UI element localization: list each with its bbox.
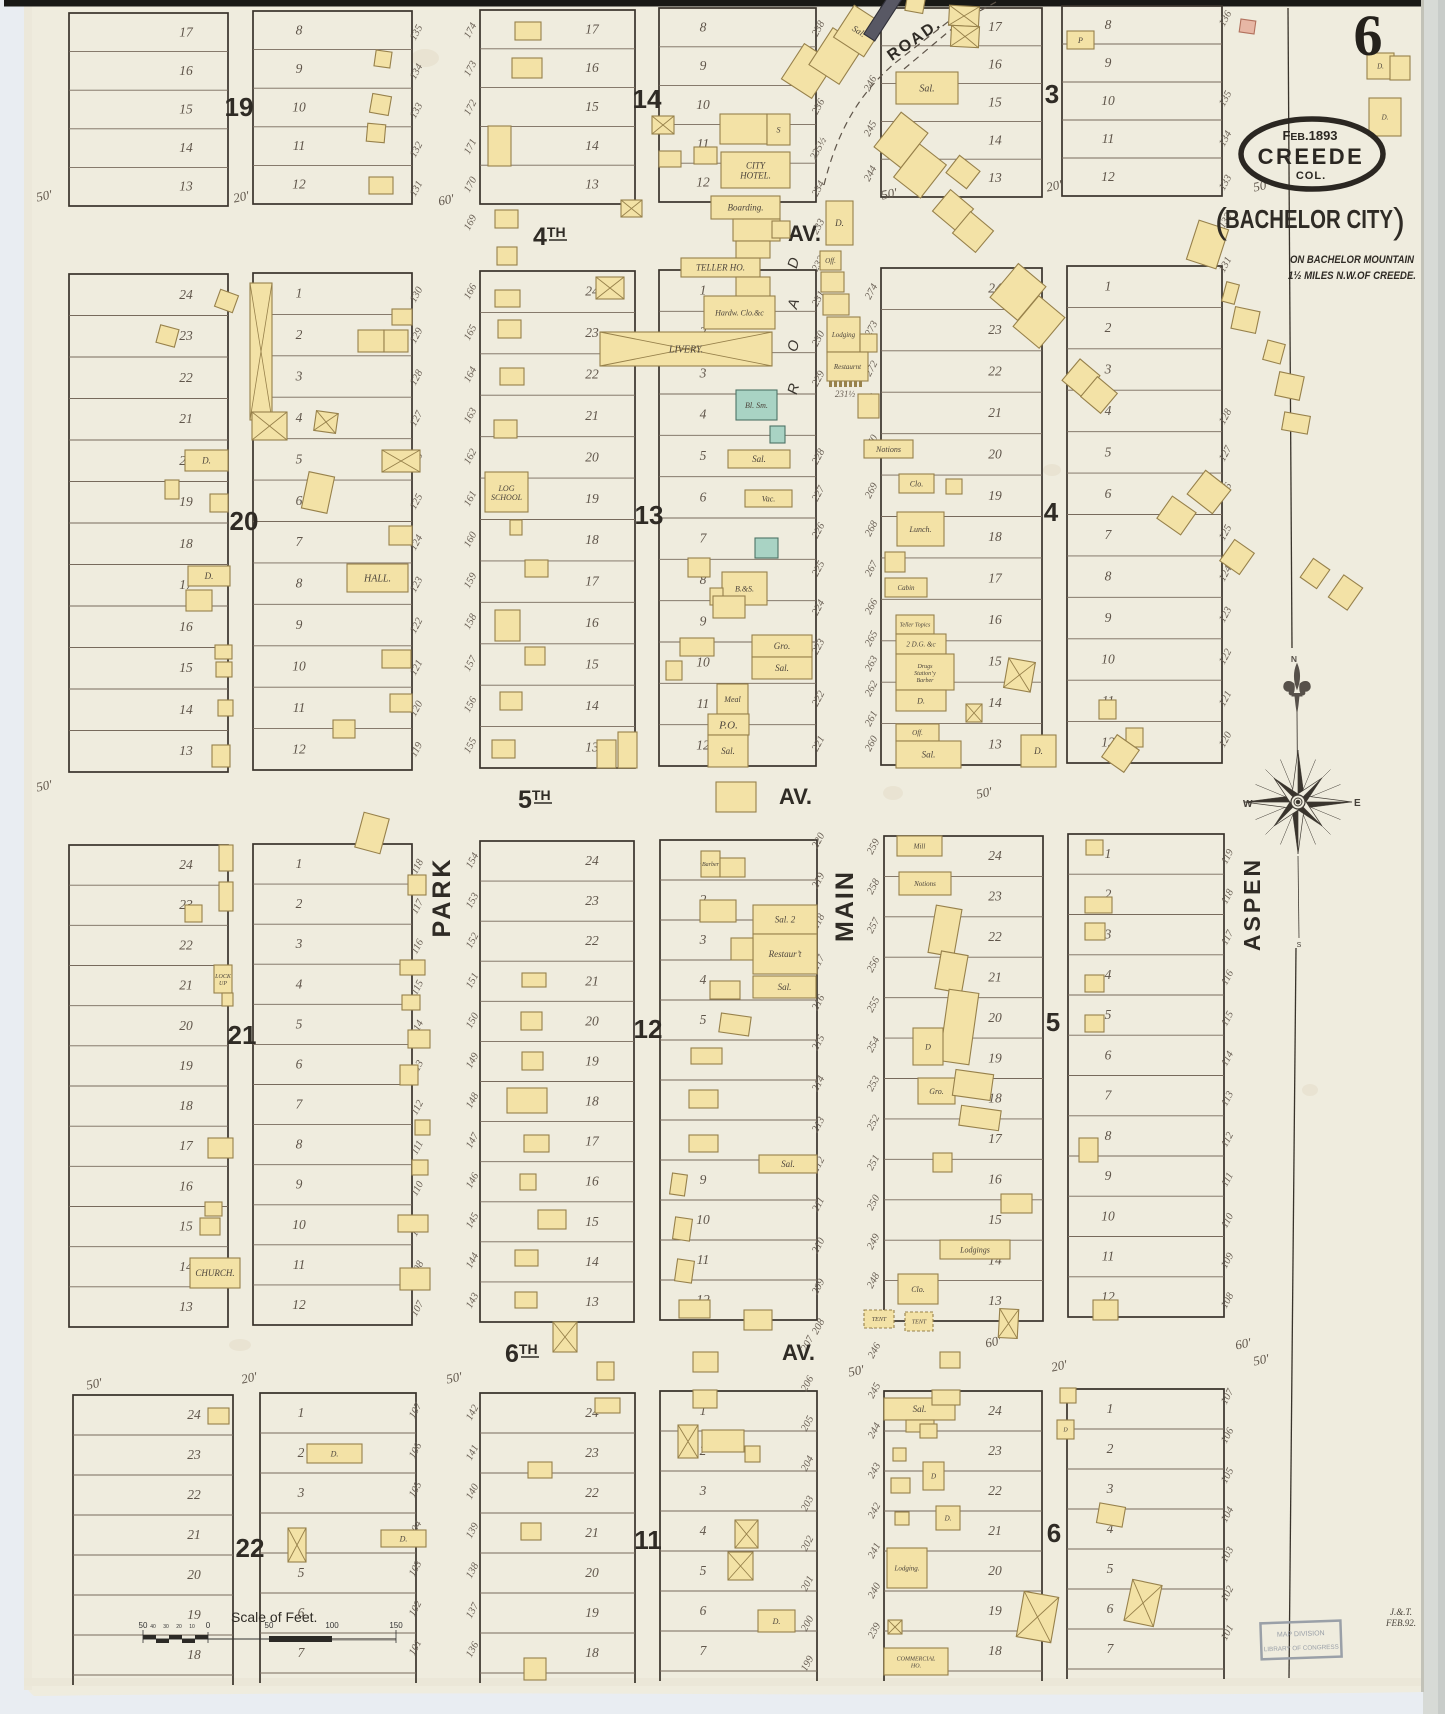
svg-text:1: 1 [298, 1405, 305, 1420]
svg-text:40: 40 [150, 1624, 156, 1630]
svg-text:Restaur’t: Restaur’t [768, 949, 802, 959]
svg-text:CREEDE: CREEDE [1258, 144, 1365, 169]
svg-text:TENT: TENT [872, 1317, 887, 1323]
svg-text:4: 4 [700, 407, 707, 422]
svg-text:LOCK: LOCK [214, 974, 232, 980]
svg-text:10: 10 [189, 1624, 195, 1630]
svg-text:Station’y: Station’y [914, 671, 936, 677]
svg-text:8: 8 [296, 1137, 303, 1152]
svg-text:13: 13 [179, 1299, 193, 1314]
svg-text:23: 23 [179, 328, 193, 343]
svg-text:AV.: AV. [788, 221, 821, 246]
svg-text:14: 14 [179, 140, 193, 155]
svg-text:3: 3 [699, 1483, 707, 1498]
svg-text:0: 0 [206, 1621, 211, 1630]
svg-text:1: 1 [1105, 279, 1112, 294]
svg-text:Sal.: Sal. [913, 1404, 927, 1414]
svg-text:3: 3 [1106, 1481, 1114, 1496]
svg-text:20: 20 [179, 1018, 193, 1033]
svg-text:D.: D. [944, 1515, 952, 1523]
svg-text:22: 22 [988, 1483, 1002, 1498]
svg-text:150: 150 [389, 1621, 403, 1630]
svg-text:8: 8 [1105, 569, 1112, 584]
svg-text:D: D [924, 1042, 931, 1051]
svg-text:PARK: PARK [428, 857, 456, 938]
svg-text:13: 13 [179, 743, 193, 758]
svg-text:Gro.: Gro. [929, 1087, 944, 1096]
svg-text:13: 13 [635, 500, 664, 530]
svg-text:Sal.: Sal. [778, 982, 792, 992]
svg-text:20: 20 [988, 1010, 1002, 1025]
svg-text:12: 12 [292, 177, 306, 192]
svg-text:16: 16 [585, 1174, 599, 1189]
svg-text:19: 19 [179, 494, 193, 509]
svg-text:Cabin: Cabin [897, 584, 915, 592]
svg-text:10: 10 [292, 1217, 306, 1232]
svg-text:14: 14 [179, 702, 193, 717]
svg-text:D.: D. [834, 218, 844, 228]
svg-text:20: 20 [230, 506, 259, 536]
svg-text:16: 16 [585, 615, 599, 630]
svg-text:18: 18 [585, 532, 599, 547]
svg-text:): ) [1393, 200, 1405, 241]
svg-text:8: 8 [296, 576, 303, 591]
svg-text:11: 11 [1102, 1249, 1115, 1264]
svg-text:TELLER HO.: TELLER HO. [696, 263, 745, 273]
svg-text:18: 18 [179, 536, 193, 551]
svg-text:Teller Topics: Teller Topics [900, 623, 931, 629]
svg-text:22: 22 [585, 367, 599, 382]
svg-text:Sal.: Sal. [721, 746, 735, 756]
svg-text:D.: D. [772, 1617, 781, 1626]
svg-text:Mill: Mill [913, 843, 926, 851]
svg-text:D.: D. [1033, 746, 1043, 756]
svg-text:24: 24 [988, 1403, 1002, 1418]
svg-text:S: S [777, 125, 781, 134]
svg-text:Sal.: Sal. [781, 1159, 795, 1169]
svg-text:17: 17 [585, 574, 600, 589]
svg-text:9: 9 [700, 613, 707, 628]
svg-text:N: N [1291, 654, 1297, 664]
svg-text:21: 21 [585, 408, 599, 423]
svg-text:5: 5 [1105, 444, 1112, 459]
svg-text:22: 22 [585, 933, 599, 948]
svg-text:4: 4 [700, 972, 707, 987]
svg-text:AV.: AV. [779, 784, 812, 809]
svg-text:Sal.: Sal. [775, 663, 789, 673]
svg-text:Sal.: Sal. [922, 750, 936, 760]
svg-text:21: 21 [228, 1020, 257, 1050]
svg-text:9: 9 [296, 1177, 303, 1192]
svg-text:2: 2 [296, 896, 303, 911]
svg-text:20: 20 [988, 446, 1002, 461]
svg-text:23: 23 [988, 889, 1002, 904]
svg-text:Lodging: Lodging [831, 331, 856, 339]
svg-text:5: 5 [1046, 1007, 1060, 1037]
svg-text:ASPEN: ASPEN [1239, 857, 1265, 951]
svg-text:10: 10 [696, 1212, 710, 1227]
svg-text:11: 11 [1102, 131, 1115, 146]
svg-text:12: 12 [292, 1297, 306, 1312]
svg-text:3: 3 [699, 932, 707, 947]
svg-text:24: 24 [988, 848, 1002, 863]
svg-text:15: 15 [179, 102, 193, 117]
svg-text:19: 19 [585, 491, 599, 506]
svg-text:21: 21 [187, 1527, 201, 1542]
svg-text:D.: D. [1381, 114, 1389, 122]
svg-text:13: 13 [179, 179, 193, 194]
svg-text:Notions: Notions [913, 880, 936, 888]
svg-text:17: 17 [988, 571, 1003, 586]
svg-text:6: 6 [700, 1603, 707, 1618]
svg-text:9: 9 [296, 617, 303, 632]
svg-text:1½ MILES N.W.OF CREEDE.: 1½ MILES N.W.OF CREEDE. [1288, 270, 1416, 282]
svg-text:Lodgings: Lodgings [959, 1245, 990, 1254]
svg-text:AV.: AV. [782, 1340, 815, 1365]
svg-text:19: 19 [988, 1603, 1002, 1618]
svg-text:30: 30 [163, 1624, 169, 1630]
svg-text:14: 14 [988, 695, 1002, 710]
svg-text:10: 10 [1101, 1208, 1115, 1223]
svg-text:16: 16 [585, 60, 599, 75]
svg-text:D: D [1062, 1428, 1068, 1434]
svg-text:22: 22 [236, 1533, 265, 1563]
svg-text:21: 21 [988, 1523, 1002, 1538]
svg-text:Lodging.: Lodging. [893, 1565, 919, 1573]
svg-text:D.: D. [201, 456, 211, 466]
svg-text:24: 24 [585, 853, 599, 868]
svg-text:3: 3 [1104, 362, 1112, 377]
svg-text:18: 18 [988, 529, 1002, 544]
svg-text:4: 4 [1105, 967, 1112, 982]
svg-text:22: 22 [179, 370, 193, 385]
svg-text:21: 21 [988, 405, 1002, 420]
svg-text:Vac.: Vac. [762, 494, 776, 503]
svg-text:FEB.1893: FEB.1893 [1282, 128, 1337, 143]
svg-text:6: 6 [1105, 486, 1112, 501]
svg-text:3: 3 [295, 936, 303, 951]
svg-text:LOG: LOG [497, 484, 514, 493]
svg-text:COL.: COL. [1296, 170, 1326, 182]
svg-text:10: 10 [1101, 93, 1115, 108]
svg-text:20: 20 [176, 1624, 182, 1630]
svg-text:20: 20 [585, 1013, 599, 1028]
svg-text:8: 8 [1105, 17, 1112, 32]
svg-text:19: 19 [179, 1058, 193, 1073]
svg-text:2: 2 [298, 1445, 305, 1460]
svg-text:1: 1 [1107, 1401, 1114, 1416]
svg-text:18: 18 [179, 1098, 193, 1113]
svg-text:24: 24 [179, 857, 193, 872]
svg-text:21: 21 [585, 973, 599, 988]
svg-text:19: 19 [187, 1607, 201, 1622]
svg-text:Barber: Barber [917, 678, 935, 684]
svg-text:22: 22 [187, 1487, 201, 1502]
svg-text:MAIN: MAIN [831, 870, 859, 942]
svg-text:Drugs: Drugs [916, 664, 933, 670]
svg-text:15: 15 [988, 95, 1002, 110]
svg-text:9: 9 [1105, 610, 1112, 625]
svg-text:8: 8 [296, 22, 303, 37]
svg-text:18: 18 [187, 1647, 201, 1662]
svg-text:17: 17 [988, 1131, 1003, 1146]
svg-text:21: 21 [179, 411, 193, 426]
svg-text:17: 17 [585, 21, 600, 36]
svg-text:SCHOOL: SCHOOL [491, 493, 523, 502]
svg-text:10: 10 [292, 659, 306, 674]
svg-text:CHURCH.: CHURCH. [195, 1268, 234, 1278]
svg-text:10: 10 [1101, 652, 1115, 667]
svg-text:16: 16 [179, 1178, 193, 1193]
svg-text:15: 15 [585, 657, 599, 672]
svg-text:23: 23 [585, 325, 599, 340]
svg-text:P.O.: P.O. [718, 719, 738, 731]
svg-text:19: 19 [988, 488, 1002, 503]
svg-text:18: 18 [988, 1643, 1002, 1658]
svg-text:16: 16 [179, 619, 193, 634]
svg-text:16: 16 [179, 63, 193, 78]
svg-text:1: 1 [296, 286, 303, 301]
svg-text:Hardw. Clo.&c: Hardw. Clo.&c [714, 308, 764, 317]
svg-text:10: 10 [292, 100, 306, 115]
svg-text:6: 6 [1354, 3, 1383, 68]
svg-text:Gro.: Gro. [774, 641, 790, 651]
svg-text:3: 3 [297, 1485, 305, 1500]
svg-text:23: 23 [187, 1447, 201, 1462]
svg-text:Sal.: Sal. [919, 84, 934, 95]
svg-text:CITY: CITY [746, 161, 766, 171]
svg-text:23: 23 [585, 1445, 599, 1460]
svg-text:4: 4 [296, 410, 303, 425]
svg-text:21: 21 [585, 1525, 599, 1540]
svg-text:17: 17 [585, 1134, 600, 1149]
svg-text:14: 14 [585, 1254, 599, 1269]
svg-text:12: 12 [1101, 169, 1115, 184]
svg-text:6: 6 [1105, 1047, 1112, 1062]
svg-text:17: 17 [179, 24, 194, 39]
svg-text:3: 3 [295, 369, 303, 384]
svg-text:19: 19 [585, 1054, 599, 1069]
svg-text:LIVERY.: LIVERY. [668, 345, 703, 356]
svg-text:1: 1 [296, 856, 303, 871]
svg-text:22: 22 [585, 1485, 599, 1500]
svg-text:5: 5 [700, 448, 707, 463]
svg-text:5: 5 [296, 451, 303, 466]
svg-text:P: P [1077, 36, 1083, 45]
svg-text:COMMERCIAL: COMMERCIAL [897, 1657, 936, 1663]
svg-text:11: 11 [634, 1525, 662, 1555]
svg-text:13: 13 [585, 177, 599, 192]
svg-text:24: 24 [187, 1407, 201, 1422]
svg-text:15: 15 [179, 660, 193, 675]
svg-text:23: 23 [585, 893, 599, 908]
svg-text:22: 22 [988, 364, 1002, 379]
svg-text:HO.: HO. [910, 1664, 921, 1670]
svg-text:9: 9 [700, 58, 707, 73]
svg-text:20: 20 [988, 1563, 1002, 1578]
svg-text:19: 19 [988, 1050, 1002, 1065]
svg-text:D: D [930, 1473, 936, 1481]
svg-text:19: 19 [225, 92, 254, 122]
svg-text:Sal. 2: Sal. 2 [775, 915, 796, 925]
svg-text:14: 14 [585, 698, 599, 713]
svg-text:4: 4 [296, 976, 303, 991]
svg-text:3: 3 [1045, 79, 1059, 109]
svg-text:D.: D. [330, 1449, 339, 1458]
svg-text:Sal.: Sal. [752, 454, 766, 464]
svg-text:11: 11 [293, 1257, 306, 1272]
svg-text:4: 4 [1044, 497, 1059, 527]
svg-text:5: 5 [1107, 1561, 1114, 1576]
svg-text:22: 22 [179, 937, 193, 952]
svg-text:14: 14 [585, 138, 599, 153]
svg-text:14: 14 [633, 84, 662, 114]
svg-text:5: 5 [1105, 1007, 1112, 1022]
svg-text:HOTEL.: HOTEL. [739, 171, 771, 181]
svg-text:2: 2 [1107, 1441, 1114, 1456]
svg-text:6: 6 [1107, 1601, 1114, 1616]
svg-text:3: 3 [699, 365, 707, 380]
svg-text:12: 12 [292, 741, 306, 756]
svg-text:16: 16 [988, 612, 1002, 627]
svg-text:6: 6 [700, 489, 707, 504]
svg-text:20: 20 [585, 449, 599, 464]
svg-text:22: 22 [988, 929, 1002, 944]
svg-text:21: 21 [988, 970, 1002, 985]
svg-text:E: E [1354, 798, 1361, 809]
svg-text:5: 5 [298, 1565, 305, 1580]
svg-text:5: 5 [700, 1012, 707, 1027]
svg-text:9: 9 [296, 61, 303, 76]
svg-text:21: 21 [179, 978, 193, 993]
svg-text:17: 17 [179, 1138, 194, 1153]
svg-text:Lunch.: Lunch. [909, 525, 932, 534]
svg-text:9: 9 [700, 1172, 707, 1187]
svg-text:Restaurnt: Restaurnt [833, 363, 862, 371]
svg-text:16: 16 [988, 57, 1002, 72]
svg-text:J.&.T.: J.&.T. [1390, 1607, 1412, 1617]
svg-text:23: 23 [988, 1443, 1002, 1458]
svg-text:13: 13 [585, 1294, 599, 1309]
svg-text:19: 19 [585, 1605, 599, 1620]
svg-text:8: 8 [1105, 1128, 1112, 1143]
svg-text:6: 6 [1047, 1518, 1061, 1548]
svg-text:20: 20 [187, 1567, 201, 1582]
svg-text:5: 5 [296, 1016, 303, 1031]
svg-text:11: 11 [697, 696, 710, 711]
svg-text:BACHELOR CITY: BACHELOR CITY [1225, 204, 1393, 234]
svg-text:HALL.: HALL. [363, 574, 391, 585]
svg-text:11: 11 [293, 700, 306, 715]
svg-text:13: 13 [988, 736, 1002, 751]
svg-text:Clo.: Clo. [910, 479, 924, 488]
svg-text:B.&S.: B.&S. [735, 584, 754, 593]
svg-text:2 D.G. &c: 2 D.G. &c [906, 641, 936, 649]
svg-text:Bl. Sm.: Bl. Sm. [745, 401, 768, 410]
svg-text:15: 15 [585, 99, 599, 114]
svg-text:D.: D. [204, 571, 214, 581]
svg-text:10: 10 [696, 655, 710, 670]
svg-text:15: 15 [988, 1212, 1002, 1227]
svg-text:Meal: Meal [723, 695, 741, 704]
svg-text:2: 2 [296, 327, 303, 342]
svg-text:Scale of Feet.: Scale of Feet. [231, 1609, 317, 1625]
svg-text:9: 9 [1105, 1168, 1112, 1183]
svg-text:18: 18 [585, 1645, 599, 1660]
svg-text:FEB.92.: FEB.92. [1385, 1618, 1416, 1628]
svg-text:15: 15 [988, 654, 1002, 669]
svg-text:10: 10 [696, 97, 710, 112]
svg-text:1: 1 [1105, 846, 1112, 861]
svg-text:8: 8 [700, 19, 707, 34]
svg-text:17: 17 [988, 19, 1003, 34]
svg-text:24: 24 [179, 287, 193, 302]
svg-text:13: 13 [988, 170, 1002, 185]
svg-text:2: 2 [1105, 320, 1112, 335]
svg-text:W: W [1243, 799, 1253, 810]
svg-text:50: 50 [265, 1621, 274, 1630]
svg-text:18: 18 [585, 1094, 599, 1109]
svg-text:5: 5 [700, 1563, 707, 1578]
svg-text:D.: D. [916, 696, 925, 705]
svg-text:ON BACHELOR MOUNTAIN: ON BACHELOR MOUNTAIN [1290, 254, 1415, 266]
svg-text:Boarding.: Boarding. [728, 203, 764, 213]
svg-text:16: 16 [988, 1172, 1002, 1187]
svg-text:Clo.: Clo. [911, 1285, 925, 1294]
svg-text:12: 12 [696, 175, 710, 190]
svg-text:23: 23 [988, 322, 1002, 337]
svg-text:20: 20 [585, 1565, 599, 1580]
svg-text:S: S [1297, 942, 1302, 949]
svg-text:14: 14 [988, 132, 1002, 147]
svg-text:9: 9 [1105, 55, 1112, 70]
svg-text:50: 50 [139, 1621, 148, 1630]
svg-text:231½: 231½ [835, 389, 856, 399]
svg-text:UP: UP [219, 981, 227, 987]
svg-text:Notions: Notions [875, 445, 901, 454]
svg-text:11: 11 [697, 1252, 710, 1267]
svg-text:4: 4 [700, 1523, 707, 1538]
svg-text:Off.: Off. [825, 257, 836, 265]
svg-text:15: 15 [585, 1214, 599, 1229]
svg-text:13: 13 [988, 1293, 1002, 1308]
svg-text:Off.: Off. [912, 729, 923, 737]
svg-text:TENT: TENT [912, 1320, 927, 1326]
svg-text:11: 11 [293, 138, 306, 153]
svg-text:6: 6 [296, 1057, 303, 1072]
svg-text:15: 15 [179, 1219, 193, 1234]
svg-text:Barber: Barber [702, 862, 720, 868]
svg-text:12: 12 [634, 1014, 663, 1044]
svg-text:D.: D. [399, 1534, 408, 1543]
svg-text:100: 100 [325, 1621, 339, 1630]
